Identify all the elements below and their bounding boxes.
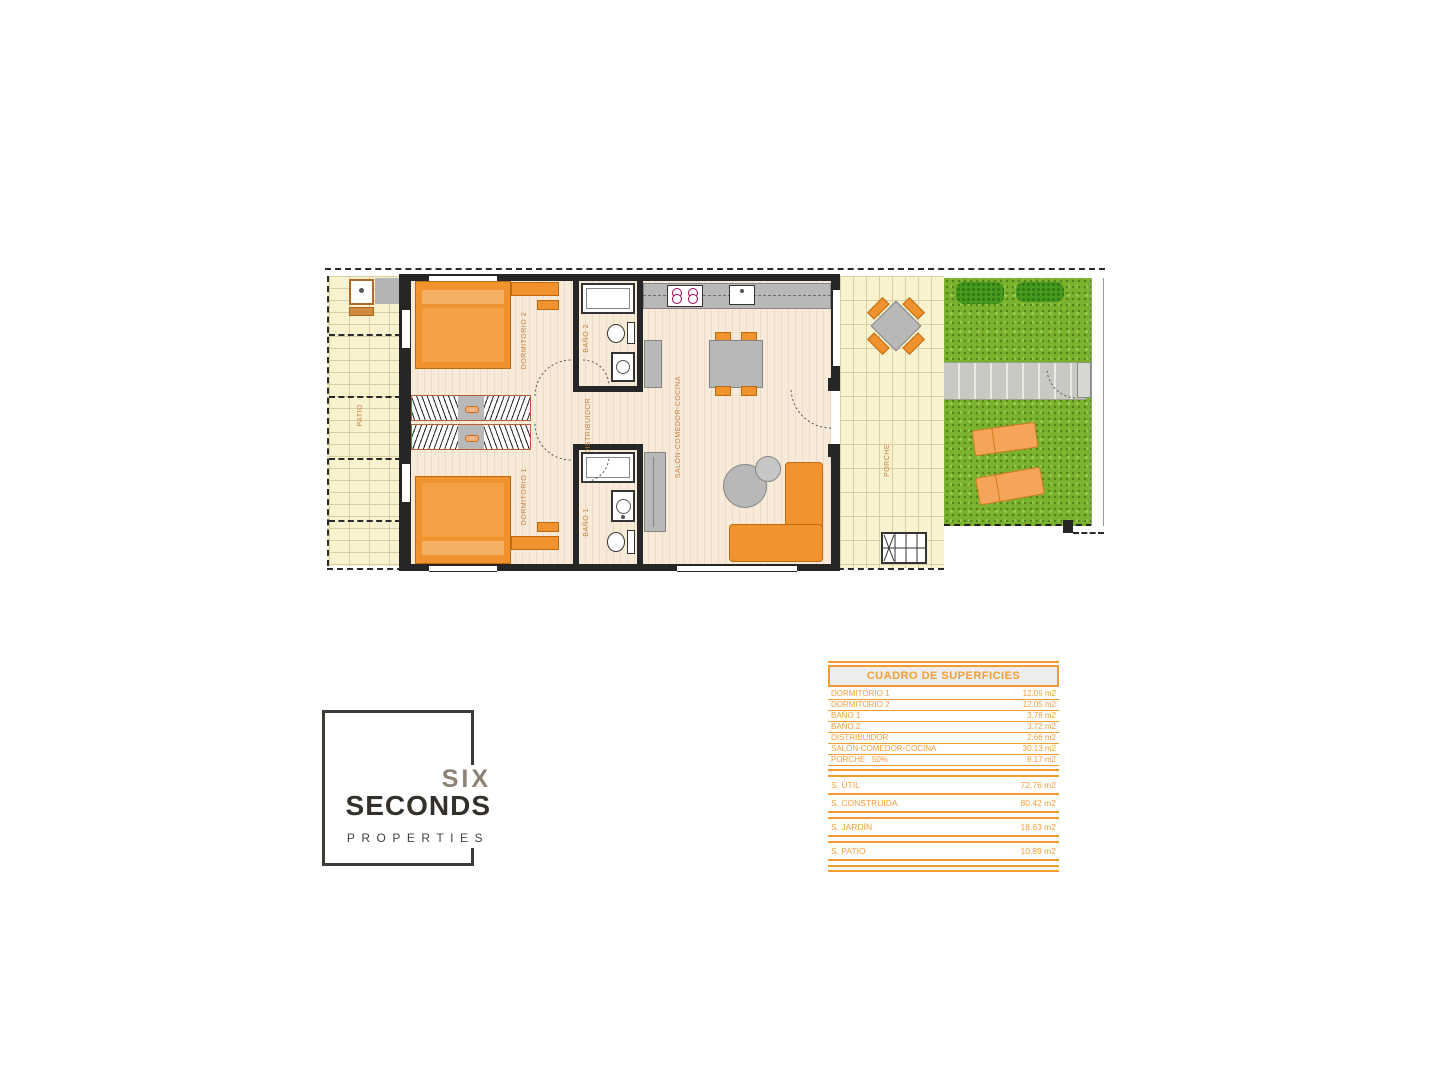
window-bottom-bedroom1 [429,565,497,572]
row-label: S. JARDÍN [831,822,872,832]
row-label: S. ÚTIL [831,780,860,790]
row-value: 30.13 m2 [1023,745,1056,753]
toilet-icon-bano1 [607,528,635,556]
washer-shelf [349,307,374,316]
logo-line-six: SIX [346,768,491,791]
wall-bano1-right [637,450,643,564]
logo-line-seconds: SECONDS [346,791,491,820]
row-label: DISTRIBUIDOR [831,734,888,742]
patio-joint-line [329,520,401,522]
wardrobe-shelf [458,425,483,449]
window-bedroom2-patio [401,310,411,348]
bed-mattress [422,308,504,362]
dining-chair-icon [741,386,757,396]
table-summary-row: S. PATIO10.89 m2 [828,843,1059,859]
row-label: S. CONSTRUIDA [831,798,898,808]
row-value: 72.76 m2 [1021,780,1056,790]
wardrobe-shelf [458,396,483,420]
row-label: S. PATIO [831,846,866,856]
room-label-salon: SALÓN-COMEDOR-COCINA [675,376,682,478]
row-label: BAÑO 1 [831,712,860,720]
brand-logo: SIX SECONDS PROPERTIES [322,710,474,866]
toilet-icon-bano2 [607,321,635,346]
garden-gate [1077,362,1091,398]
patio-joint-line [329,458,401,460]
bush-icon [1016,282,1064,302]
sun-lounger-icon [975,466,1045,505]
wall-bano1-left [573,450,579,564]
bed-pillow [422,541,504,555]
row-label: PORCHE 50% [831,756,888,764]
patio-joint-line [329,396,401,398]
row-value: 12.05 m2 [1023,690,1056,698]
sun-lounger-icon [972,422,1039,457]
room-label-dormitorio2: DORMITORIO 2 [521,312,528,369]
wall-bano2-left [573,281,579,386]
hanging-clothes-icon [484,396,530,420]
bed-pillow [422,290,504,304]
plan-boundary-top [325,268,1105,270]
nightstand-icon-dormitorio2 [537,300,559,310]
patio-utility-counter [375,278,399,304]
bed-mattress [422,483,504,537]
bathtub-inner [586,288,630,309]
table-summary-row: S. JARDÍN18.63 m2 [828,819,1059,835]
table-rule [828,769,1059,777]
row-value: 8.17 m2 [1027,756,1056,764]
room-label-porche: PORCHE [884,444,891,477]
bush-icon [956,282,1004,304]
dining-table-icon [709,340,763,388]
table-row: DORMITORIO 112.05 m2 [828,689,1059,700]
table-row: DORMITORIO 212.05 m2 [828,700,1059,711]
stove-icon [667,285,703,307]
wall-bano1-top [573,444,643,450]
room-label-dormitorio1: DORMITORIO 1 [521,468,528,525]
window-bedroom1-patio [401,464,411,502]
row-value: 2.66 m2 [1027,734,1056,742]
table-row: PORCHE 50%8.17 m2 [828,755,1059,766]
stepping-path [944,362,1086,400]
dining-chair-icon [715,386,731,396]
patio-area: PATIO [327,276,401,566]
bed-icon-dormitorio1 [415,476,511,564]
table-summary-row: S. ÚTIL72.76 m2 [828,777,1059,793]
row-value: 10.89 m2 [1021,846,1056,856]
porch-area: PORCHE [840,276,944,568]
table-row: BAÑO 23.72 m2 [828,722,1059,733]
table-rule [828,811,1059,819]
wardrobe-icon-top [411,395,531,421]
hanging-clothes-icon [412,396,458,420]
sink-icon-bano2 [611,352,635,382]
row-label: SALÓN-COMEDOR-COCINA [831,745,936,753]
wardrobe-icon-bottom [411,424,531,450]
porch-table-icon [851,281,942,372]
brand-logo-text: SIX SECONDS PROPERTIES [334,765,491,848]
row-value: 3.72 m2 [1027,723,1056,731]
row-label: BAÑO 2 [831,723,860,731]
tv-cabinet-icon [644,452,666,532]
wall-right-lower [831,457,840,571]
floor-plan: PATIO DORMITORIO 2 DORMITORIO 1 [325,268,1110,580]
garden-corner-stub [1063,520,1073,533]
dresser-icon-dormitorio1 [511,536,559,550]
window-bottom-salon [677,565,797,572]
hanging-clothes-icon [412,425,458,449]
room-label-distribuidor: DISTRIBUIDOR [585,398,592,454]
bathtub-icon-bano1 [581,452,635,483]
nightstand-icon-dormitorio1 [537,522,559,532]
bathtub-icon-bano2 [581,283,635,314]
stairs-icon [881,532,927,564]
surfaces-table: CUADRO DE SUPERFICIES DORMITORIO 112.05 … [828,661,1059,872]
dresser-icon-dormitorio2 [511,282,559,296]
table-row: BAÑO 13.78 m2 [828,711,1059,722]
patio-joint-line [329,334,401,336]
bed-icon-dormitorio2 [415,281,511,369]
garden-boundary-step [1073,532,1104,534]
sideboard-icon [644,340,662,388]
table-rule [828,859,1059,867]
room-label-bano1: BAÑO 1 [583,508,590,537]
bathtub-inner [586,457,630,478]
wall-bano2-bottom [573,386,643,392]
row-value: 3.78 m2 [1027,712,1056,720]
row-value: 12.05 m2 [1023,701,1056,709]
surfaces-table-title: CUADRO DE SUPERFICIES [828,665,1059,687]
row-value: 80.42 m2 [1021,798,1056,808]
table-row: DISTRIBUIDOR2.66 m2 [828,733,1059,744]
garden-right-wall [1091,278,1104,526]
room-label-bano2: BAÑO 2 [583,324,590,353]
row-label: DORMITORIO 2 [831,701,890,709]
washer-icon [349,279,374,305]
side-table-icon [755,456,781,482]
row-label: DORMITORIO 1 [831,690,890,698]
table-row: SALÓN-COMEDOR-COCINA30.13 m2 [828,744,1059,755]
hanging-clothes-icon [484,425,530,449]
table-rule [828,835,1059,843]
table-rule [828,661,1059,663]
sink-icon-bano1 [611,490,635,522]
table-summary-row: S. CONSTRUIDA80.42 m2 [828,795,1059,811]
room-label-patio: PATIO [357,404,364,426]
logo-line-properties: PROPERTIES [346,832,491,845]
garden-area [944,278,1092,526]
table-rule [828,870,1059,872]
sofa-icon [729,524,823,562]
row-value: 18.63 m2 [1021,822,1056,832]
kitchen-sink-icon [729,285,755,305]
